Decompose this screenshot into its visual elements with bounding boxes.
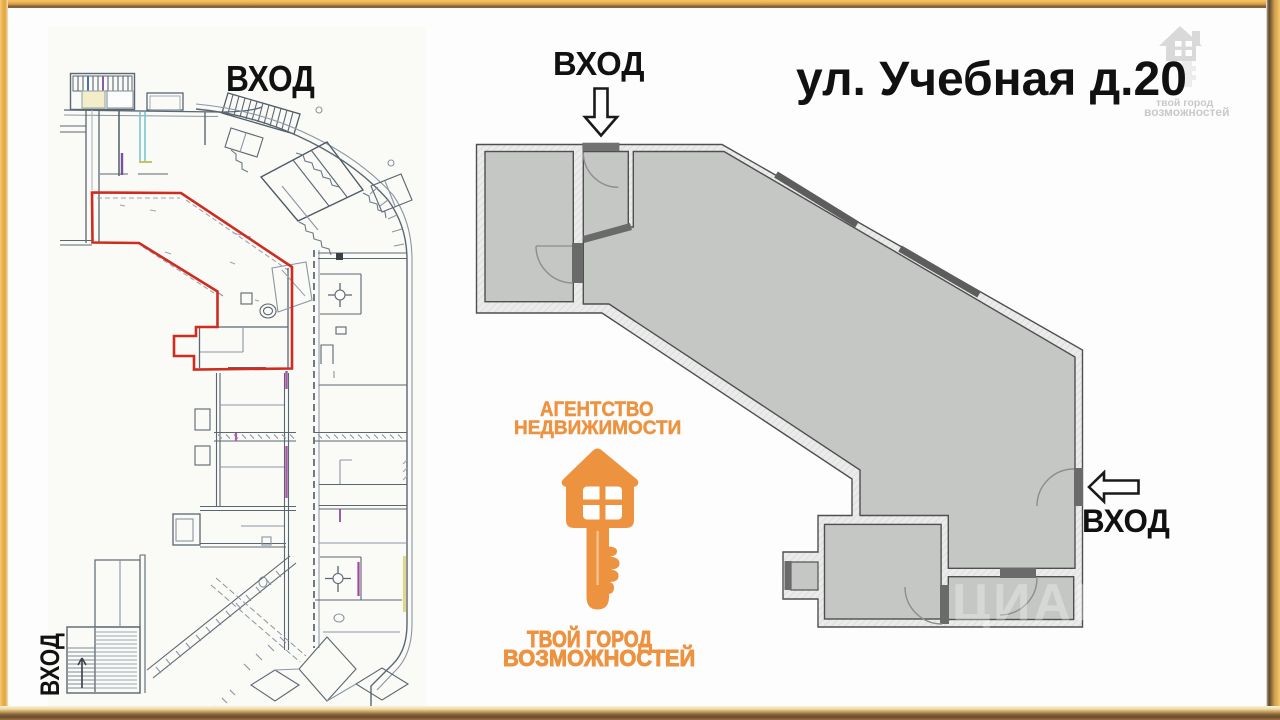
svg-text:ЦИАН: ЦИАН (952, 574, 1114, 632)
